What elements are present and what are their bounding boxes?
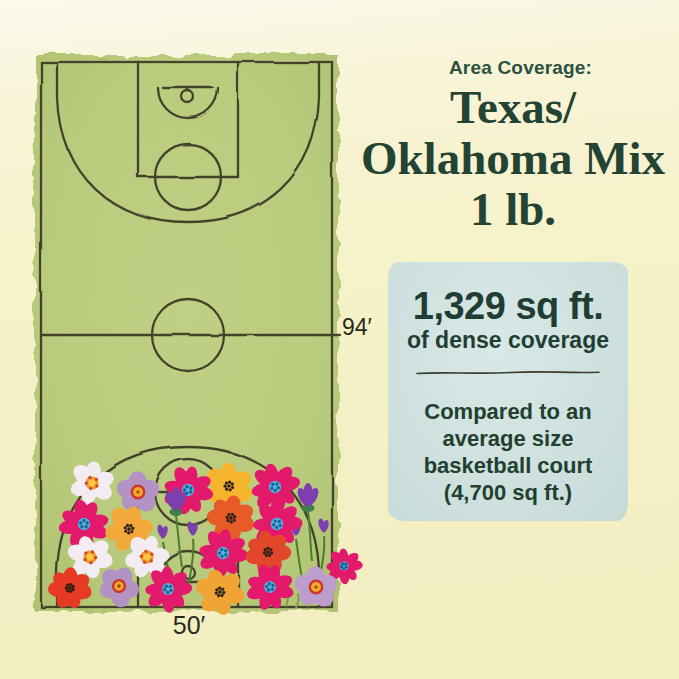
seed-coverage-infographic: 94′ 50′ Area Coverage: Texas/ Oklahoma M… xyxy=(0,0,679,679)
area-coverage-heading: Area Coverage: xyxy=(362,57,679,79)
comparison-line-3: basketball court xyxy=(388,452,628,479)
comparison-line-4: (4,700 sq ft.) xyxy=(388,479,628,506)
comparison-text: Compared to an average size basketball c… xyxy=(388,398,628,506)
title-line-1: Texas/ xyxy=(347,82,679,133)
hand-drawn-divider xyxy=(415,369,601,376)
comparison-line-2: average size xyxy=(388,425,628,452)
court-width-label: 50′ xyxy=(145,611,233,640)
title-line-2: Oklahoma Mix xyxy=(347,133,679,184)
coverage-value: 1,329 sq ft. xyxy=(388,285,628,327)
product-title: Texas/ Oklahoma Mix 1 lb. xyxy=(347,82,679,235)
coverage-info-box: 1,329 sq ft. of dense coverage Compared … xyxy=(388,262,628,521)
comparison-line-1: Compared to an xyxy=(388,398,628,425)
coverage-caption: of dense coverage xyxy=(388,327,628,353)
title-line-3: 1 lb. xyxy=(347,184,679,235)
court-length-label: 94′ xyxy=(342,314,372,341)
